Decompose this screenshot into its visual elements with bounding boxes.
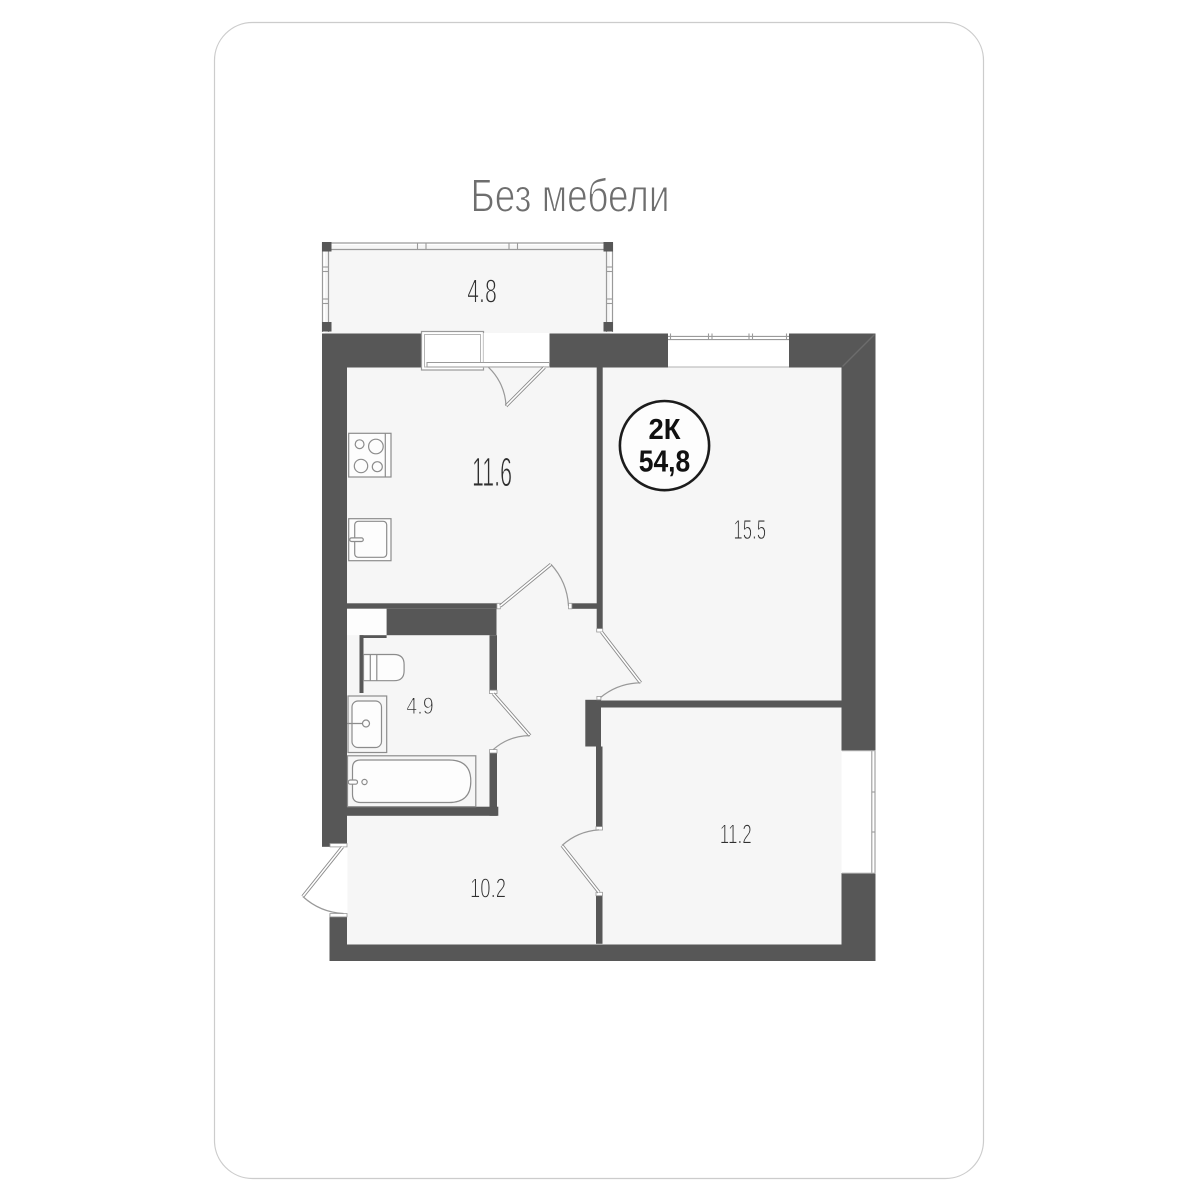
svg-text:11.6: 11.6: [472, 449, 512, 495]
svg-text:54,8: 54,8: [639, 445, 691, 479]
svg-text:4.8: 4.8: [467, 273, 497, 310]
svg-text:Без мебели: Без мебели: [471, 170, 670, 222]
svg-text:10.2: 10.2: [470, 873, 506, 904]
svg-text:11.2: 11.2: [720, 819, 752, 850]
svg-text:2К: 2К: [649, 414, 681, 446]
svg-text:15.5: 15.5: [733, 514, 766, 545]
svg-text:4.9: 4.9: [406, 693, 434, 720]
